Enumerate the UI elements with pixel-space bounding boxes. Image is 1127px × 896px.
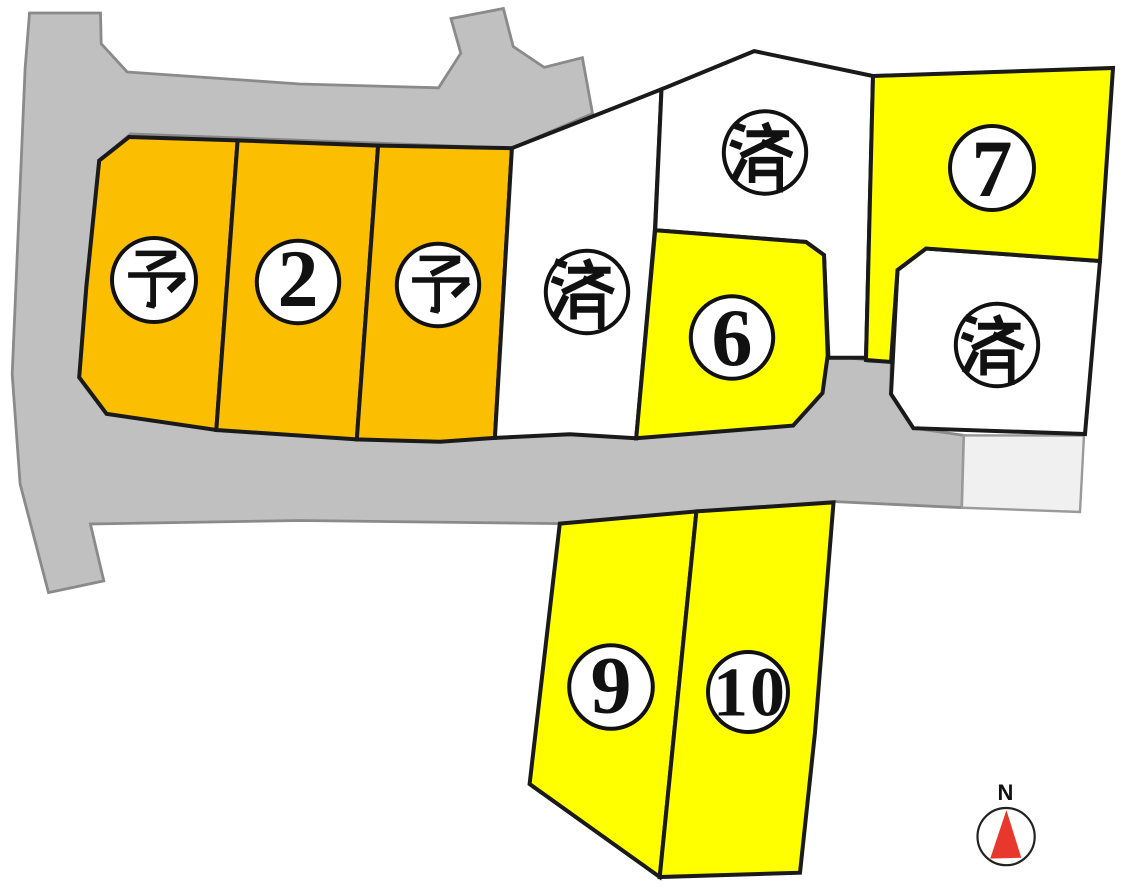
svg-text:10: 10 [713, 655, 787, 732]
svg-text:7: 7 [972, 123, 1013, 214]
svg-text:2: 2 [278, 233, 319, 324]
svg-text:9: 9 [591, 640, 632, 731]
svg-text:6: 6 [712, 292, 753, 383]
svg-text:N: N [997, 780, 1013, 805]
